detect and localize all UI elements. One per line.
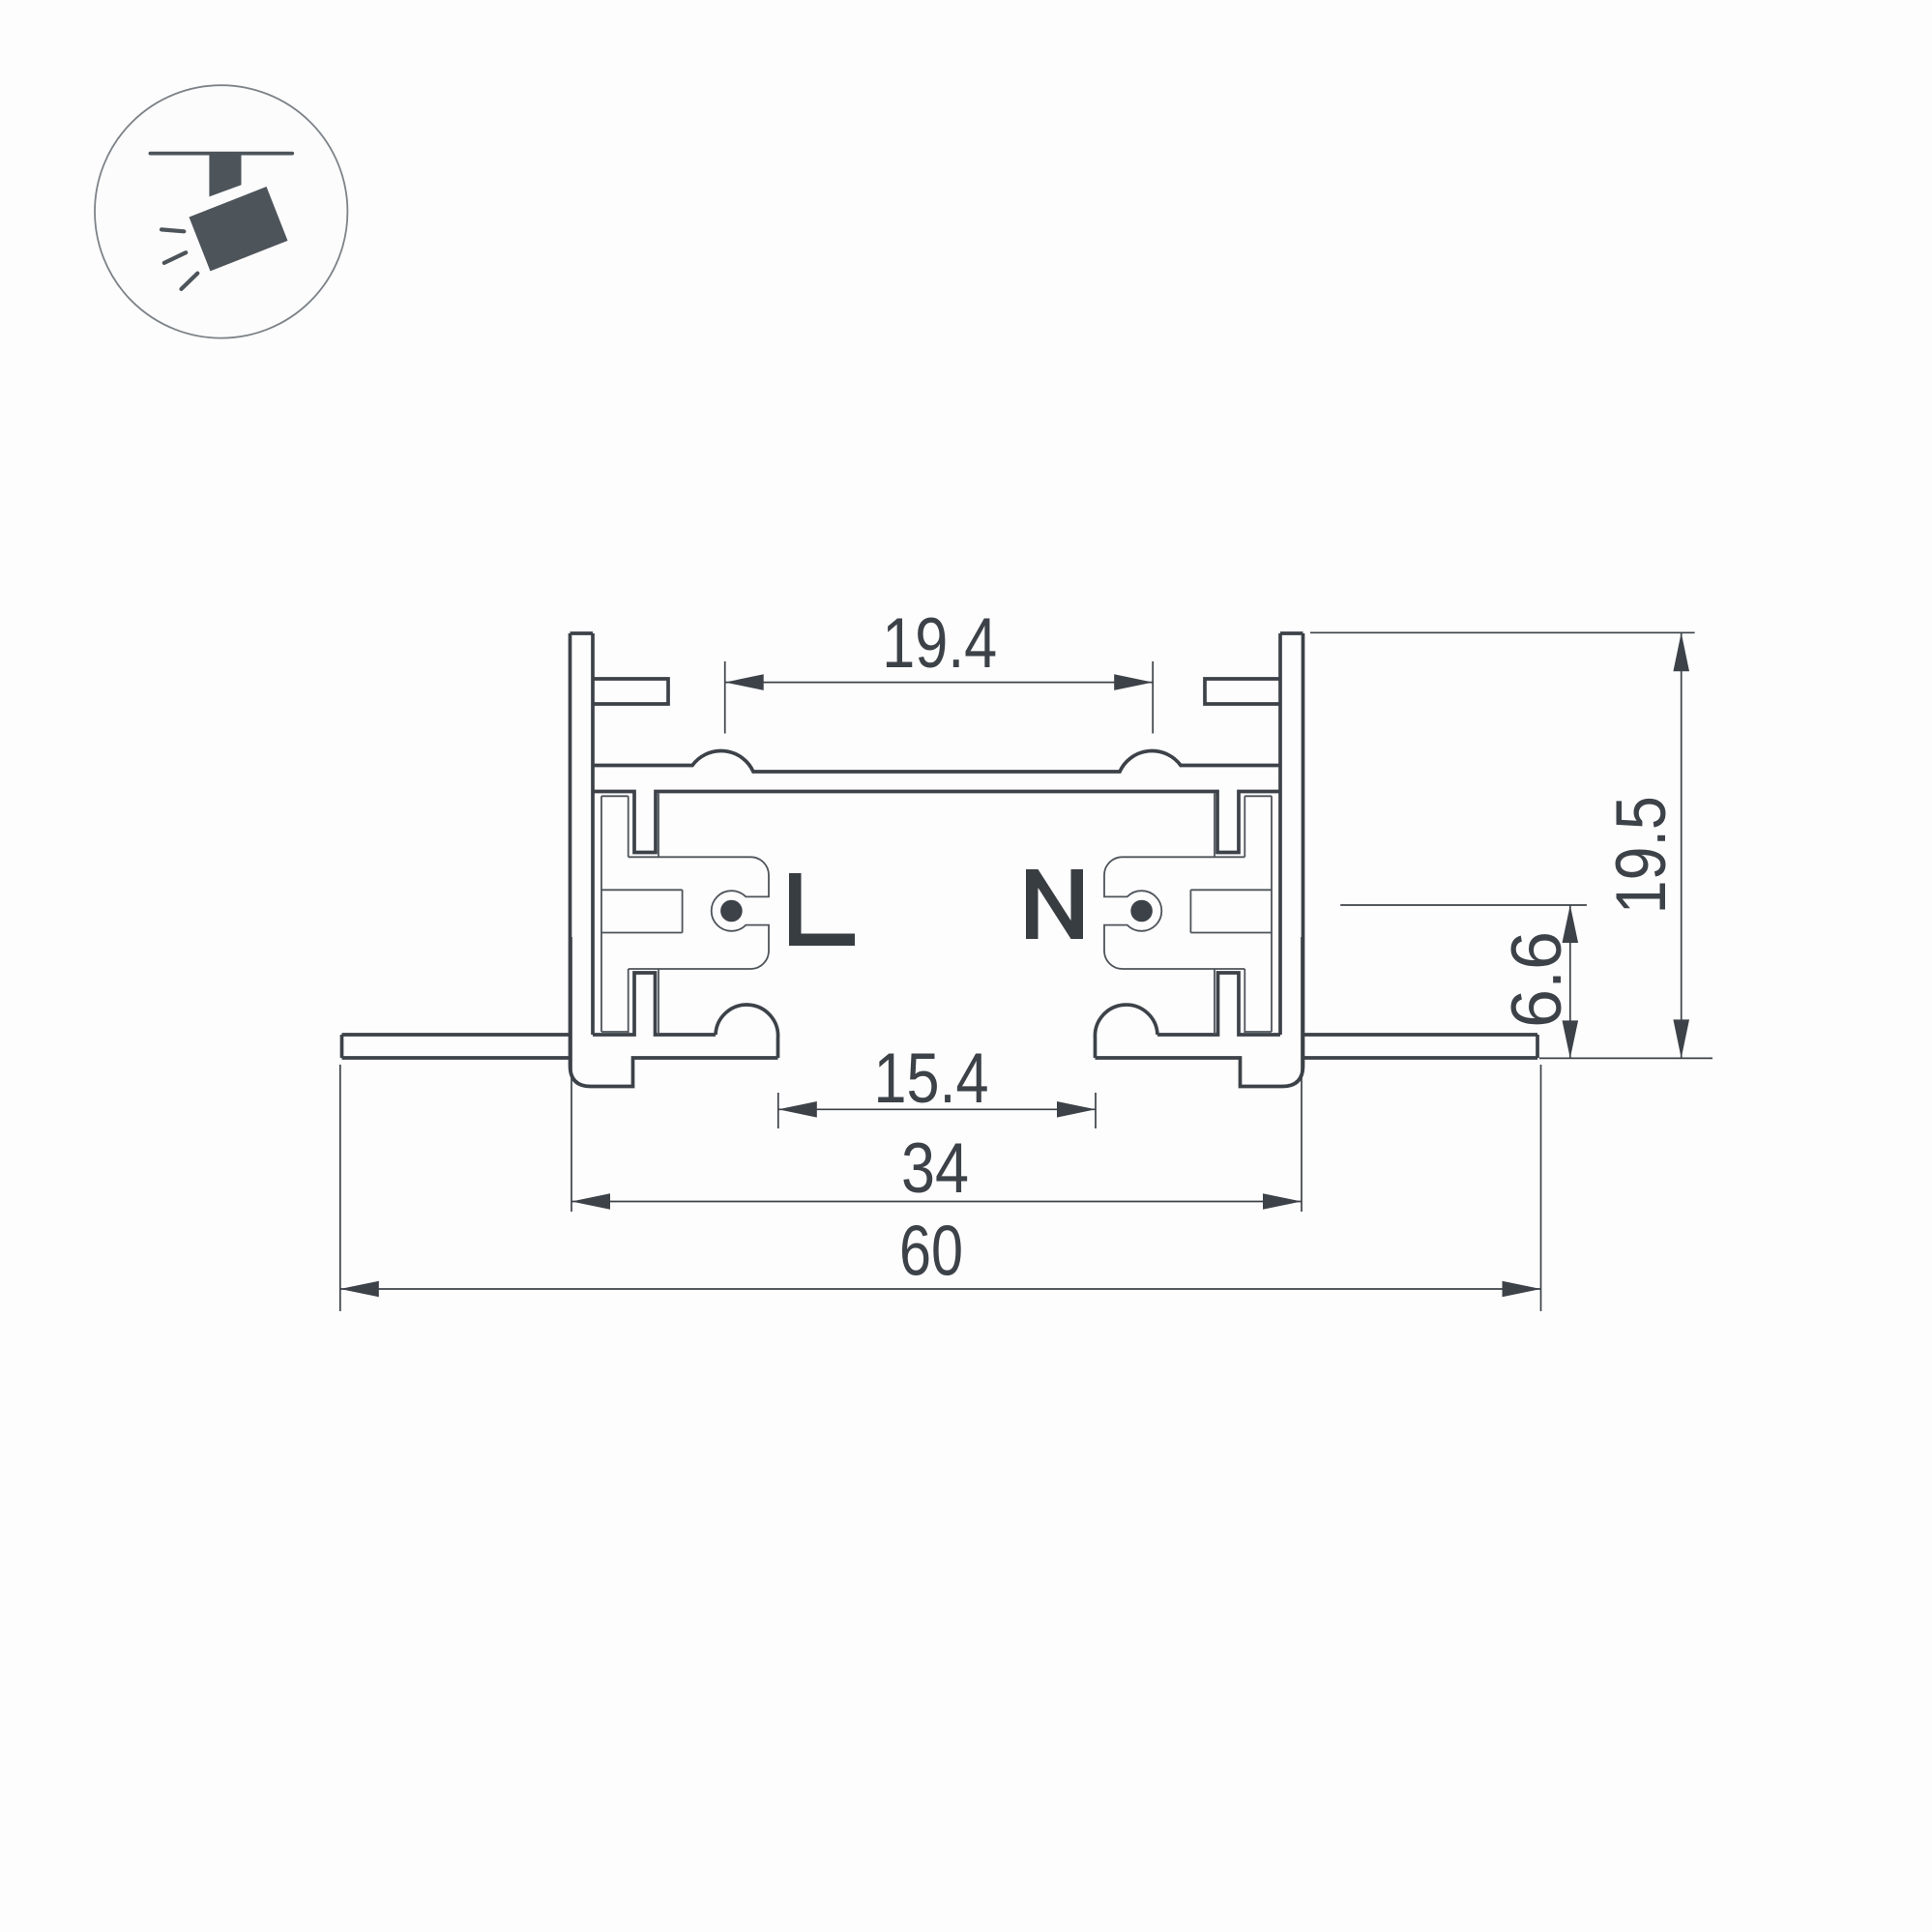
svg-text:19.5: 19.5 <box>1602 796 1681 914</box>
svg-text:19.4: 19.4 <box>882 604 997 683</box>
svg-text:6.6: 6.6 <box>1498 931 1576 1028</box>
svg-text:34: 34 <box>901 1129 969 1208</box>
svg-text:60: 60 <box>899 1213 963 1291</box>
svg-text:15.4: 15.4 <box>874 1039 989 1118</box>
